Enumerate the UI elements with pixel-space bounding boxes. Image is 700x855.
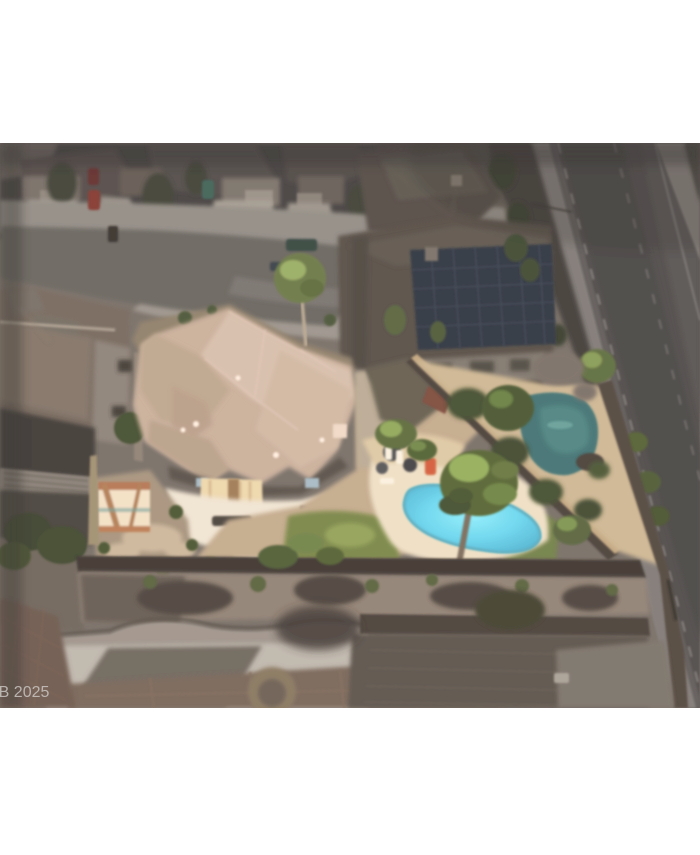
svg-text:EB 2025: EB 2025	[0, 684, 49, 701]
